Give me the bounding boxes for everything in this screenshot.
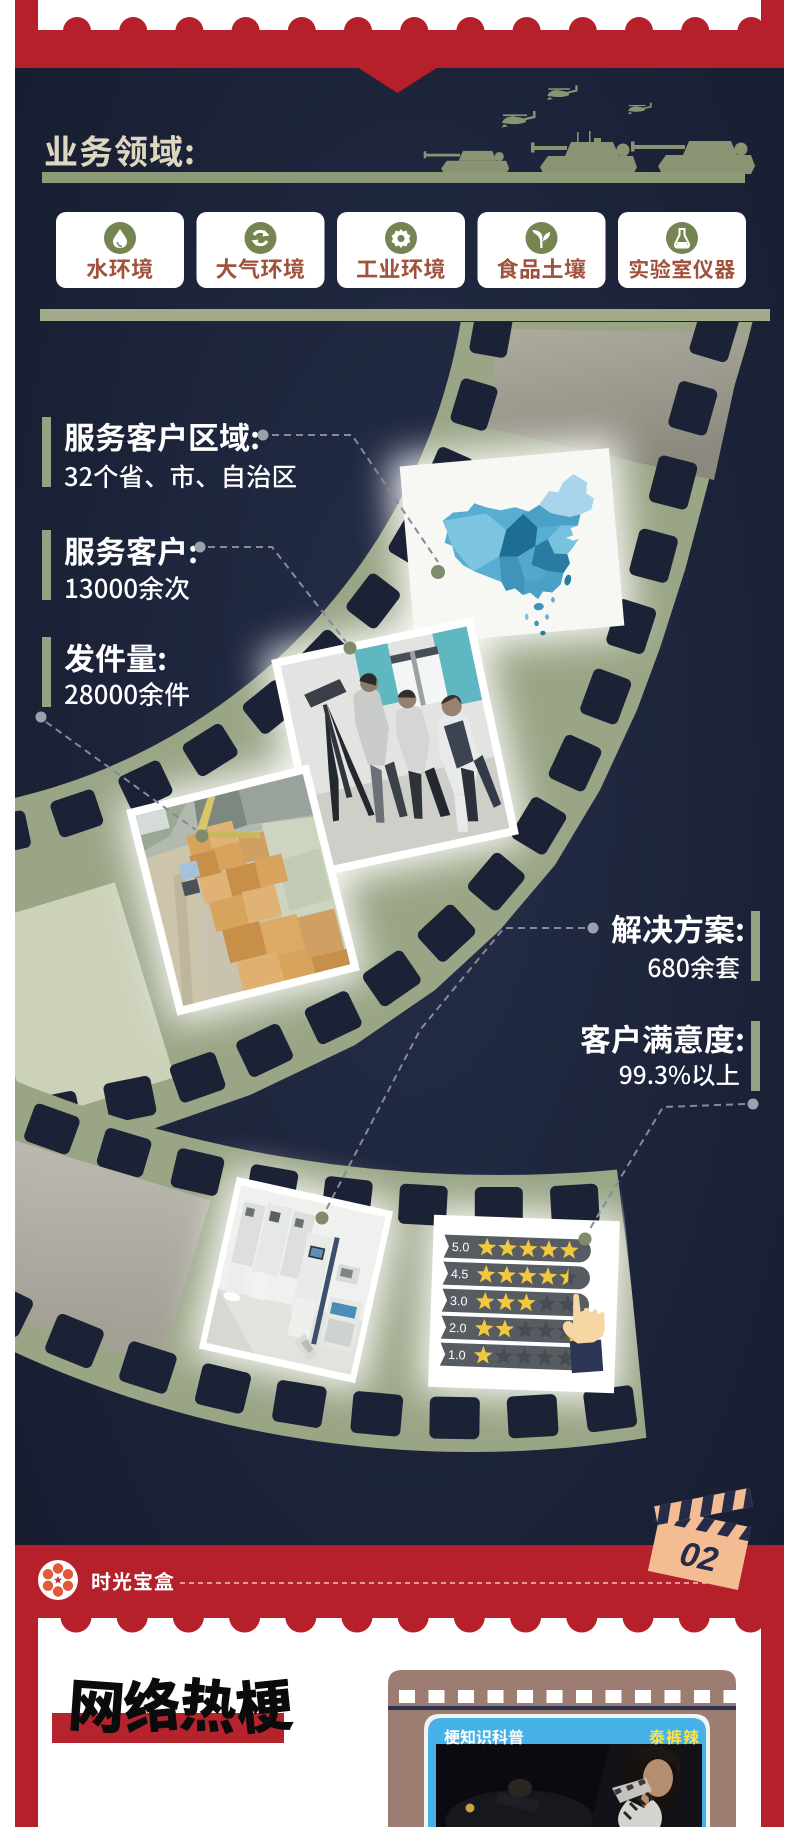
svg-text:02: 02	[676, 1535, 721, 1580]
svg-text:4.5: 4.5	[451, 1267, 469, 1282]
svg-text:3.0: 3.0	[450, 1294, 468, 1309]
svg-text:1.0: 1.0	[448, 1348, 466, 1363]
svg-text:5.0: 5.0	[452, 1240, 470, 1255]
svg-text:2.0: 2.0	[449, 1321, 467, 1336]
